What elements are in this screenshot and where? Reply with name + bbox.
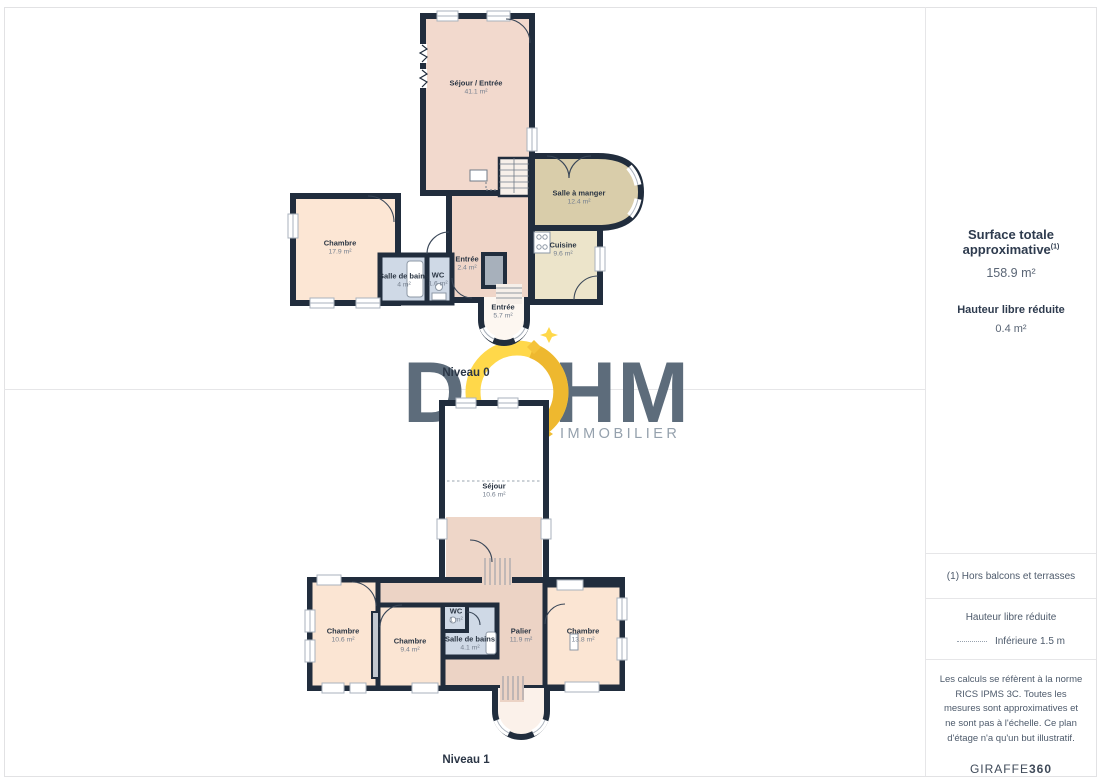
niveau0-title: Niveau 0 <box>442 367 489 379</box>
room-label-chambre-n0: Chambre 17.9 m² <box>324 239 357 258</box>
surface-total-footnote-marker: (1) <box>1051 243 1060 250</box>
room-label-sejour-n1: Séjour 10.6 m² <box>482 482 505 501</box>
giraffe360-suffix: 360 <box>1029 762 1052 776</box>
sidebar-legend-section: Hauteur libre réduite Inférieure 1.5 m <box>926 599 1096 659</box>
room-label-cuisine: Cuisine 9.6 m² <box>549 241 576 260</box>
room-label-entree: Entrée 2.4 m² <box>455 255 478 274</box>
sidebar-footnote-section: (1) Hors balcons et terrasses <box>926 554 1096 598</box>
surface-total-title: Surface totale approximative(1) <box>926 227 1096 257</box>
room-name: Chambre <box>394 637 427 647</box>
room-name: Séjour <box>482 482 505 492</box>
room-area: 9.4 m² <box>394 646 427 655</box>
legend-item-text: Inférieure 1.5 m <box>995 636 1065 647</box>
room-label-chambre-centre: Chambre 9.4 m² <box>394 637 427 656</box>
surface-total-title-text: Surface totale approximative <box>963 227 1054 257</box>
legend-title: Hauteur libre réduite <box>966 612 1057 623</box>
room-name: Séjour / Entrée <box>450 79 503 89</box>
room-label-salle-a-manger: Salle à manger 12.4 m² <box>553 189 606 208</box>
room-area: 41.1 m² <box>450 88 503 97</box>
room-area: 9.6 m² <box>549 250 576 259</box>
room-area: 4.1 m² <box>445 644 495 653</box>
room-area: 4 m² <box>379 281 429 290</box>
room-area: 10.6 m² <box>482 491 505 500</box>
room-name: Chambre <box>567 627 600 637</box>
footnote-text: (1) Hors balcons et terrasses <box>947 571 1075 582</box>
room-label-wc-n1: WC 1 m² <box>449 607 463 626</box>
reduced-height-value: 0.4 m² <box>995 323 1026 335</box>
room-area: 1 m² <box>449 616 463 625</box>
room-name: Chambre <box>324 239 357 249</box>
room-area: 12.4 m² <box>553 198 606 207</box>
room-label-wc-n0: WC 1.6 m² <box>428 271 447 290</box>
giraffe360-credit: GIRAFFE360 <box>970 762 1052 776</box>
room-area: 10.6 m² <box>327 636 360 645</box>
room-area: 1.6 m² <box>428 280 447 289</box>
niveau1-floorplan <box>290 395 640 755</box>
legend-row: Inférieure 1.5 m <box>957 636 1065 647</box>
sidebar-disclaimer-section: Les calculs se réfèrent à la norme RICS … <box>926 660 1096 776</box>
room-label-chambre-ouest: Chambre 10.6 m² <box>327 627 360 646</box>
room-name: Salle à manger <box>553 189 606 199</box>
room-label-entree-tour: Entrée 5.7 m² <box>491 303 514 322</box>
room-name: Salle de bains <box>445 635 495 645</box>
room-label-palier: Palier 11.9 m² <box>510 627 533 646</box>
surface-total-value: 158.9 m² <box>986 266 1035 280</box>
room-name: Salle de bains <box>379 272 429 282</box>
room-name: Palier <box>510 627 533 637</box>
room-name: Entrée <box>491 303 514 313</box>
room-name: Chambre <box>327 627 360 637</box>
room-name: Entrée <box>455 255 478 265</box>
reduced-height-title: Hauteur libre réduite <box>957 304 1065 316</box>
room-label-chambre-est: Chambre 13.8 m² <box>567 627 600 646</box>
room-name: Cuisine <box>549 241 576 251</box>
niveau0-floorplan <box>280 0 660 370</box>
room-area: 2.4 m² <box>455 264 478 273</box>
reduced-height-line <box>957 641 987 642</box>
room-area: 11.9 m² <box>510 636 533 645</box>
room-label-sejour-entree: Séjour / Entrée 41.1 m² <box>450 79 503 98</box>
giraffe360-brand: GIRAFFE <box>970 762 1029 776</box>
sidebar-summary-section: Surface totale approximative(1) 158.9 m²… <box>926 8 1096 553</box>
room-label-salle-de-bains-n1: Salle de bains 4.1 m² <box>445 635 495 654</box>
room-label-salle-de-bains-n0: Salle de bains 4 m² <box>379 272 429 291</box>
room-area: 5.7 m² <box>491 312 514 321</box>
room-area: 13.8 m² <box>567 636 600 645</box>
niveau1-title: Niveau 1 <box>442 754 489 766</box>
disclaimer-text: Les calculs se réfèrent à la norme RICS … <box>926 673 1096 747</box>
room-name: WC <box>428 271 447 281</box>
room-area: 17.9 m² <box>324 248 357 257</box>
room-name: WC <box>449 607 463 617</box>
